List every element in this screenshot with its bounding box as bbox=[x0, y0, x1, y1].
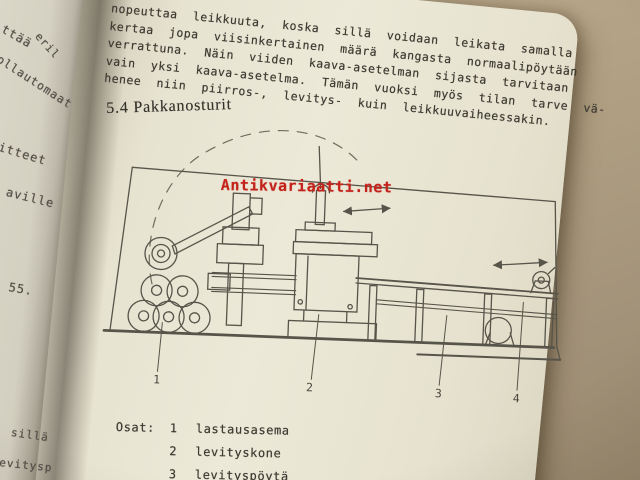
part-name: levityskone bbox=[195, 445, 281, 461]
parts-list-label-spacer bbox=[115, 466, 169, 467]
crane-pulley bbox=[144, 237, 177, 270]
part-number: 2 bbox=[169, 444, 195, 459]
part-number: 3 bbox=[169, 467, 195, 480]
figure-part-label-2: 2 bbox=[306, 380, 313, 394]
dashed-swing-arc bbox=[148, 126, 358, 298]
figure-part-label-3: 3 bbox=[435, 386, 443, 400]
figure-part-label-1: 1 bbox=[153, 372, 161, 386]
watermark-text: Antikvariaatti.net bbox=[221, 176, 393, 196]
book-photo-scene: ttää eril ollautomaat itteet aville 55. … bbox=[0, 0, 640, 480]
spreading-machine-body bbox=[288, 229, 380, 340]
end-pulley bbox=[531, 267, 555, 294]
part-name: lastausasema bbox=[196, 422, 290, 438]
packing-crane-diagram: 1 2 3 4 bbox=[101, 127, 616, 407]
part-name: levityspöytä bbox=[195, 468, 289, 480]
crane-arm bbox=[172, 204, 253, 257]
travel-arrow-left bbox=[344, 206, 390, 213]
spreading-table bbox=[354, 278, 558, 348]
figure-part-label-4: 4 bbox=[512, 391, 520, 405]
travel-arrow-right bbox=[494, 260, 547, 267]
part-number: 1 bbox=[170, 421, 196, 436]
parts-list-label: Osat: bbox=[116, 420, 170, 435]
crane-column bbox=[206, 192, 265, 326]
conveyor-rails bbox=[212, 272, 297, 294]
parts-list: Osat: 1 lastausasema 2 levityskone 3 lev… bbox=[115, 420, 290, 480]
parts-list-label-spacer bbox=[116, 443, 170, 444]
fabric-rolls bbox=[128, 274, 212, 334]
